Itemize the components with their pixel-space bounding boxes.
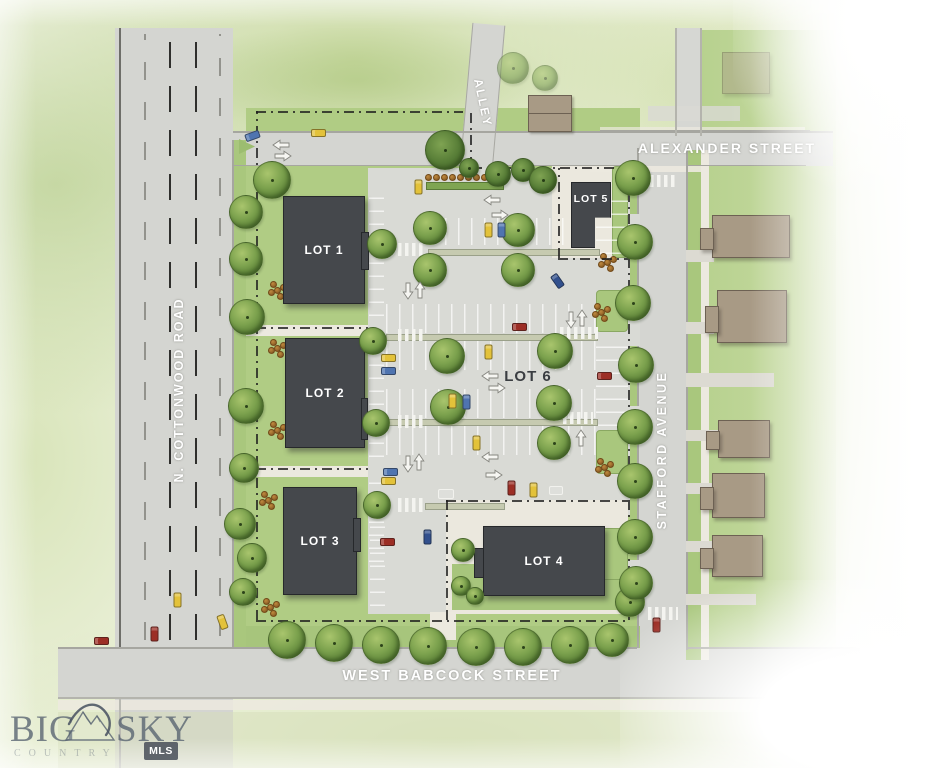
- property-line: [470, 111, 472, 167]
- car-icon: [216, 614, 229, 631]
- driveway: [686, 541, 718, 552]
- tree-icon: [228, 388, 264, 424]
- lot-2-label: LOT 2: [305, 386, 344, 400]
- property-line: [472, 167, 628, 169]
- grass-pocket: [596, 290, 628, 332]
- crosswalk-marking: [650, 175, 678, 187]
- tree-icon: [229, 242, 263, 276]
- shrub-icon: [270, 339, 277, 346]
- parking-lot: [368, 168, 630, 515]
- curb-line: [58, 647, 637, 649]
- lane-marking: [195, 34, 197, 640]
- shrub-icon: [425, 174, 432, 181]
- vignette-layer: [0, 0, 933, 768]
- crosswalk-marking: [398, 415, 424, 428]
- median-island: [386, 419, 598, 426]
- curb-cut: [628, 560, 640, 590]
- driveway: [686, 483, 718, 494]
- tree-icon: [362, 409, 390, 437]
- curb-line: [232, 140, 234, 648]
- car-icon: [173, 593, 181, 608]
- tree-icon: [497, 52, 529, 84]
- roof-ridge: [529, 113, 571, 114]
- shrub-icon: [274, 287, 281, 294]
- parking-stall-lines: [386, 304, 598, 333]
- tree-icon: [362, 626, 400, 664]
- shrub-icon: [604, 306, 611, 313]
- tree-icon: [617, 463, 653, 499]
- shrub-icon: [481, 174, 488, 181]
- tree-icon: [430, 389, 466, 425]
- grass-pocket: [596, 528, 628, 580]
- shrub-icon: [601, 315, 608, 322]
- street-label-cottonwood: N. COTTONWOOD ROAD: [172, 280, 188, 500]
- house: [700, 228, 714, 250]
- shrub-icon: [268, 289, 275, 296]
- car-icon: [529, 483, 537, 498]
- car-icon: [597, 372, 612, 380]
- neighbor-lawn: [686, 30, 836, 662]
- shrub-icon: [271, 494, 278, 501]
- curb-line: [686, 148, 688, 650]
- roads-layer: [0, 0, 933, 768]
- shrub-icon: [268, 429, 275, 436]
- shrub-icon: [604, 470, 611, 477]
- parking-stall-lines: [370, 520, 385, 606]
- arrow-left-icon: [481, 450, 499, 462]
- alexander-sidewalk-north: [600, 127, 805, 133]
- car-icon: [311, 129, 326, 137]
- curb-line: [686, 647, 856, 649]
- shrub-icon: [594, 303, 601, 310]
- property-line: [628, 167, 630, 620]
- detail-layer: [0, 0, 933, 768]
- tree-icon: [315, 624, 353, 662]
- tree-icon: [615, 587, 645, 617]
- tree-icon: [367, 229, 397, 259]
- driveway: [686, 430, 718, 441]
- boundary-layer: [0, 0, 933, 768]
- shrub-icon: [263, 598, 270, 605]
- lot-1-building: LOT 1: [283, 196, 365, 304]
- shrub-icon: [274, 345, 281, 352]
- tree-icon: [618, 347, 654, 383]
- stafford-east-grass: [686, 150, 701, 660]
- babcock-street: [58, 648, 860, 698]
- lot-4-building: LOT 4: [483, 526, 605, 596]
- street-label-stafford: STAFFORD AVENUE: [655, 340, 671, 560]
- property-line: [256, 111, 463, 113]
- curb-cut: [628, 406, 640, 430]
- fade-right: [750, 0, 933, 768]
- parking-stall-lines: [596, 340, 628, 426]
- curb-line: [496, 165, 630, 167]
- house: [717, 290, 787, 343]
- mountain-icon: [64, 700, 116, 744]
- shrub-icon: [433, 174, 440, 181]
- curb-cut: [628, 320, 640, 346]
- tree-icon: [537, 426, 571, 460]
- car-icon: [549, 273, 564, 290]
- tree-icon: [359, 327, 387, 355]
- brand-subtitle: COUNTRY: [14, 748, 118, 759]
- lot4-lawn: [452, 564, 622, 610]
- car-icon: [414, 180, 422, 195]
- shrub-icon: [277, 293, 284, 300]
- curb-line: [600, 130, 810, 132]
- tree-icon: [485, 161, 511, 187]
- curb-line: [675, 28, 677, 136]
- lot-3-building: LOT 3: [283, 487, 357, 595]
- lot-3-bump: [353, 518, 361, 552]
- parking-stall-lines: [386, 341, 598, 370]
- tree-icon: [425, 130, 465, 170]
- tree-icon: [501, 213, 535, 247]
- house: [705, 306, 719, 333]
- tree-icon: [617, 409, 653, 445]
- lane-marking: [169, 34, 171, 640]
- crosswalk-marking: [398, 498, 424, 512]
- arrow-left-icon: [272, 138, 290, 150]
- cottonwood-road: [115, 28, 233, 768]
- parking-stall-lines: [432, 218, 564, 245]
- property-line: [256, 468, 368, 470]
- fade-top: [0, 0, 933, 26]
- tree-icon: [619, 566, 653, 600]
- lot-6-area-label: LOT 6: [496, 368, 560, 384]
- shrub-icon: [270, 281, 277, 288]
- property-line: [446, 500, 448, 620]
- car-icon: [383, 468, 398, 476]
- curb-line: [233, 131, 833, 133]
- tree-icon: [537, 333, 573, 369]
- crosswalk-marking: [398, 329, 424, 341]
- property-line: [256, 111, 258, 620]
- tree-icon: [363, 491, 391, 519]
- car-icon: [472, 436, 480, 451]
- arrow-up-icon: [576, 429, 588, 447]
- lot-4-label: LOT 4: [524, 554, 563, 568]
- lot-4-bump: [474, 548, 484, 578]
- parking-stall-lines: [369, 190, 384, 316]
- landscape-layer: [0, 0, 933, 768]
- south-walkway: [430, 612, 456, 640]
- surfaces-layer: [0, 0, 933, 768]
- shrub-icon: [610, 256, 617, 263]
- arrow-right-icon: [485, 470, 503, 482]
- median-island: [426, 182, 504, 190]
- grass-pocket: [596, 430, 628, 474]
- tree-icon: [429, 338, 465, 374]
- arrow-down-icon: [564, 311, 576, 329]
- house: [700, 487, 714, 510]
- parking-stall-lines: [369, 345, 384, 457]
- car-icon: [94, 637, 109, 645]
- tree-icon: [511, 158, 535, 182]
- arrow-up-icon: [415, 281, 427, 299]
- shrub-icon: [600, 253, 607, 260]
- car-icon: [512, 323, 527, 331]
- tree-icon: [413, 211, 447, 245]
- shrub-icon: [261, 491, 268, 498]
- stafford-west-grass: [630, 168, 638, 620]
- lot-5-label: LOT 5: [574, 193, 609, 205]
- lot-1-bump: [361, 232, 369, 270]
- car-icon: [507, 481, 515, 496]
- parking-stall-lines: [596, 192, 628, 254]
- property-line: [256, 327, 368, 329]
- shrub-icon: [268, 347, 275, 354]
- shrub-icon: [268, 503, 275, 510]
- tree-icon: [229, 578, 257, 606]
- car-icon: [484, 223, 492, 238]
- west-walkway-1: [246, 325, 368, 336]
- car-icon: [380, 538, 395, 546]
- tree-icon: [229, 453, 259, 483]
- cross-street-stub: [648, 106, 740, 121]
- tree-icon: [224, 508, 256, 540]
- curb-cut: [628, 214, 640, 238]
- shrub-icon: [598, 261, 605, 268]
- tree-icon: [615, 160, 651, 196]
- car-icon: [381, 367, 396, 375]
- tree-icon: [237, 543, 267, 573]
- parking-stall-lines: [386, 426, 598, 455]
- street-label-alexander: ALEXANDER STREET: [627, 140, 827, 156]
- shrub-icon: [280, 342, 287, 349]
- arrow-left-icon: [481, 369, 499, 381]
- west-walkway-2: [246, 466, 368, 477]
- south-drive-aisle: [368, 515, 446, 614]
- tree-icon: [413, 253, 447, 287]
- shrub-icon: [592, 311, 599, 318]
- car-icon: [652, 618, 660, 633]
- fade-left: [0, 0, 36, 768]
- tree-icon: [451, 538, 475, 562]
- alexander-street-drive: [233, 132, 833, 166]
- arrow-right-icon: [488, 383, 506, 395]
- tree-icon: [504, 628, 542, 666]
- house: [712, 473, 765, 518]
- tree-icon: [229, 299, 265, 335]
- shrub-icon: [270, 421, 277, 428]
- tree-icon: [451, 576, 471, 596]
- lot-2-building: LOT 2: [285, 338, 365, 448]
- shrub-icon: [277, 433, 284, 440]
- shrub-icon: [604, 259, 611, 266]
- fade-bottom-right: [620, 580, 933, 768]
- shrub-icon: [489, 174, 496, 181]
- stafford-avenue: [638, 148, 686, 664]
- tree-icon: [551, 626, 589, 664]
- shrub-icon: [607, 461, 614, 468]
- street-label-babcock: WEST BABCOCK STREET: [332, 668, 572, 684]
- lane-marking: [144, 34, 146, 640]
- shrub-icon: [473, 174, 480, 181]
- median-island: [428, 249, 600, 256]
- tree-icon: [532, 65, 558, 91]
- shrub-icon: [280, 424, 287, 431]
- site-plan: LOT 1 LOT 2 LOT 3 LOT 4 LOT 5 N. COTTONW…: [0, 0, 933, 768]
- babcock-boulevard-grass: [246, 626, 640, 648]
- tree-icon: [615, 285, 651, 321]
- arrow-up-icon: [577, 309, 589, 327]
- tree-icon: [536, 385, 572, 421]
- driveway: [686, 594, 756, 605]
- shrub-icon: [280, 284, 287, 291]
- property-line: [558, 258, 628, 260]
- driveway: [686, 250, 714, 262]
- lot-1-label: LOT 1: [304, 243, 343, 257]
- trees-layer: [0, 0, 933, 768]
- shrub-icon: [273, 601, 280, 608]
- car-icon: [462, 395, 470, 410]
- house: [718, 420, 770, 458]
- utility-pad: [438, 489, 454, 499]
- stafford-avenue-north: [676, 28, 701, 140]
- property-line: [446, 500, 628, 502]
- curb-line: [119, 28, 121, 648]
- shrub-icon: [261, 606, 268, 613]
- shrub-icon: [598, 309, 605, 316]
- shrub-icon: [457, 174, 464, 181]
- shrub-icon: [265, 497, 272, 504]
- shrub-icon: [595, 466, 602, 473]
- stafford-sidewalk: [701, 150, 709, 660]
- lot-3-label: LOT 3: [300, 534, 339, 548]
- neighbor-lawn-north: [233, 28, 543, 132]
- arrow-left-icon: [483, 193, 501, 205]
- crosswalk-marking: [648, 607, 678, 620]
- street-label-alley: ALLEY: [469, 67, 497, 138]
- car-icon: [150, 627, 158, 642]
- crosswalk-marking: [560, 327, 598, 339]
- curb-line: [700, 28, 702, 136]
- shrub-icon: [277, 351, 284, 358]
- mls-badge: MLS: [144, 742, 178, 760]
- lot-2-bump: [361, 398, 368, 440]
- shrub-icon: [601, 464, 608, 471]
- parking-stall-lines: [386, 389, 598, 418]
- house: [712, 215, 790, 258]
- tree-icon: [229, 195, 263, 229]
- shrub-icon: [465, 174, 472, 181]
- lot-5-building: LOT 5: [571, 182, 611, 248]
- utility-pad: [549, 486, 563, 495]
- tree-icon: [595, 623, 629, 657]
- car-icon: [381, 477, 396, 485]
- car-icon: [381, 354, 396, 362]
- property-line: [558, 168, 560, 258]
- tree-icon: [459, 158, 479, 178]
- car-icon: [484, 345, 492, 360]
- traffic-layer: [0, 0, 933, 768]
- shrub-icon: [497, 174, 504, 181]
- alexander-sidewalk-south: [590, 166, 702, 172]
- shrub-icon: [449, 174, 456, 181]
- curb-line: [686, 165, 806, 167]
- driveway: [686, 322, 714, 334]
- crosswalk-marking: [563, 412, 593, 424]
- arrow-up-icon: [414, 453, 426, 471]
- tree-icon: [529, 166, 557, 194]
- house: [700, 548, 714, 569]
- crosswalk-marking: [398, 243, 424, 256]
- tree-icon: [617, 519, 653, 555]
- tree-icon: [409, 627, 447, 665]
- house: [722, 52, 770, 94]
- arrow-down-icon: [401, 455, 413, 473]
- property-line: [256, 620, 629, 622]
- curb-line: [233, 165, 466, 167]
- arrow-right-icon: [491, 210, 509, 222]
- labels-layer: N. COTTONWOOD ROAD STAFFORD AVENUE ALEXA…: [0, 0, 933, 768]
- lane-marking: [219, 34, 221, 636]
- car-icon: [497, 223, 505, 238]
- fade-top-right: [733, 0, 933, 200]
- car-icon: [423, 530, 431, 545]
- site-lawn: [246, 108, 640, 642]
- shrub-icon: [441, 174, 448, 181]
- car-icon: [244, 130, 261, 143]
- shrub-icon: [259, 499, 266, 506]
- car-icon: [448, 394, 456, 409]
- house: [712, 535, 763, 577]
- grass-pocket: [612, 166, 628, 258]
- arrow-down-icon: [401, 282, 413, 300]
- tree-icon: [617, 224, 653, 260]
- shrub-icon: [274, 427, 281, 434]
- cottonwood-boulevard-grass: [233, 140, 246, 648]
- median-island: [386, 334, 598, 341]
- alley-road: [460, 23, 506, 171]
- tree-icon: [253, 161, 291, 199]
- tree-icon: [268, 621, 306, 659]
- shrub-icon: [267, 604, 274, 611]
- lot5-plaza: [552, 166, 628, 258]
- mls-watermark: BIG SKY COUNTRY MLS: [10, 696, 250, 766]
- parking-stall-lines: [369, 478, 384, 562]
- entry-island: [239, 139, 255, 154]
- alley-outbuilding: [528, 95, 572, 132]
- arrow-right-icon: [274, 151, 292, 163]
- median-island: [425, 503, 505, 510]
- tree-icon: [501, 253, 535, 287]
- shrub-icon: [270, 610, 277, 617]
- tree-icon: [466, 587, 484, 605]
- curb-line: [637, 148, 639, 648]
- shrub-icon: [607, 265, 614, 272]
- lot4-plaza: [446, 500, 628, 614]
- tree-icon: [457, 628, 495, 666]
- shrub-icon: [597, 458, 604, 465]
- buildings-layer: LOT 1 LOT 2 LOT 3 LOT 4 LOT 5: [0, 0, 933, 768]
- driveway: [686, 373, 774, 387]
- house: [706, 431, 720, 450]
